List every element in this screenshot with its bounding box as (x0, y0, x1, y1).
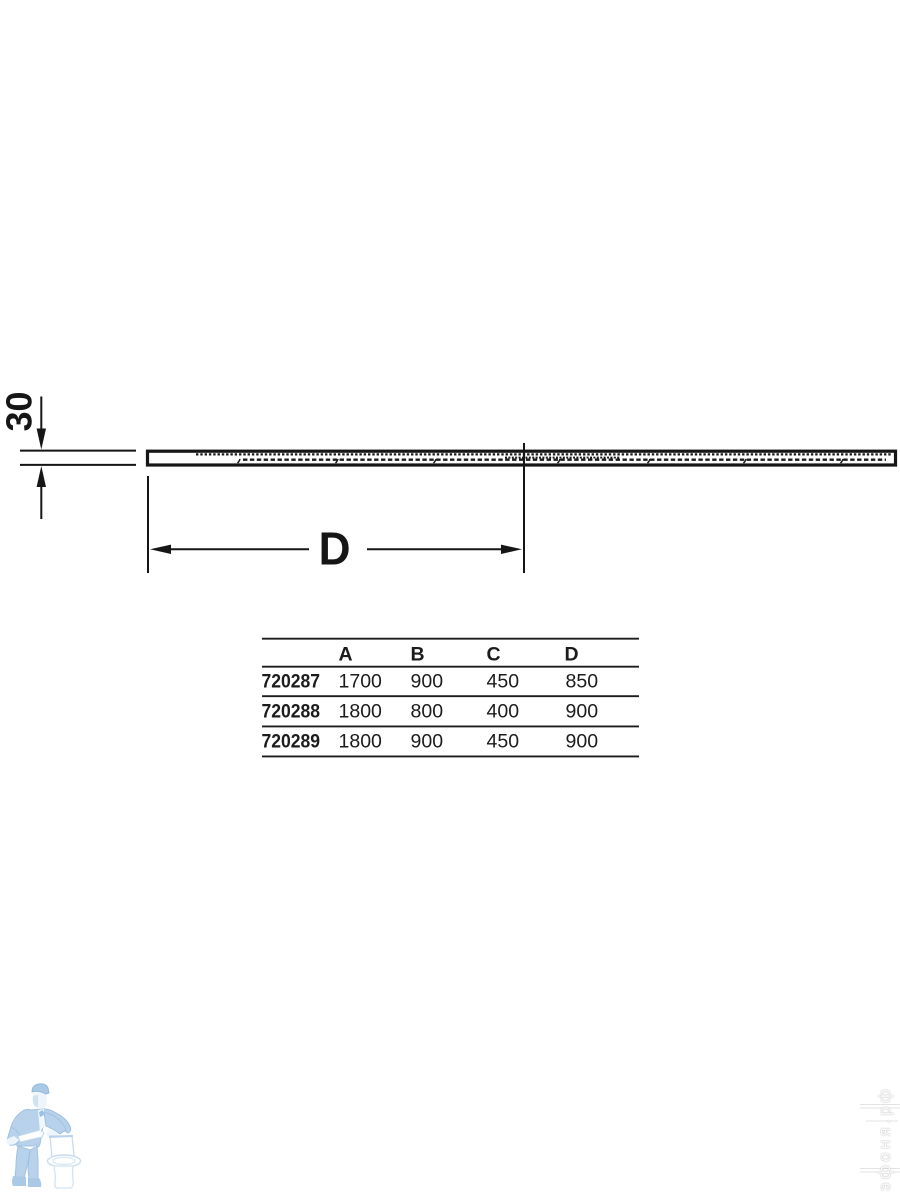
svg-text:D: D (565, 643, 579, 665)
svg-text:720289: 720289 (262, 730, 321, 752)
svg-text:900: 900 (566, 731, 599, 753)
svg-text:D: D (319, 523, 351, 575)
svg-text:900: 900 (411, 731, 444, 753)
svg-text:A: A (339, 643, 353, 665)
svg-text:450: 450 (487, 731, 520, 753)
svg-text:B: B (411, 643, 425, 665)
svg-text:800: 800 (411, 701, 444, 723)
svg-text:1800: 1800 (339, 731, 383, 753)
svg-text:400: 400 (487, 701, 520, 723)
svg-text:720288: 720288 (262, 700, 321, 722)
svg-text:900: 900 (411, 671, 444, 693)
svg-text:C: C (487, 643, 501, 665)
svg-text:30: 30 (0, 391, 40, 431)
svg-text:1700: 1700 (339, 671, 383, 693)
svg-text:850: 850 (566, 671, 599, 693)
svg-text:900: 900 (566, 701, 599, 723)
svg-text:эфоня.рф: эфоня.рф (876, 1086, 894, 1191)
svg-text:1800: 1800 (339, 701, 383, 723)
svg-text:720287: 720287 (262, 670, 321, 692)
svg-text:450: 450 (487, 671, 520, 693)
